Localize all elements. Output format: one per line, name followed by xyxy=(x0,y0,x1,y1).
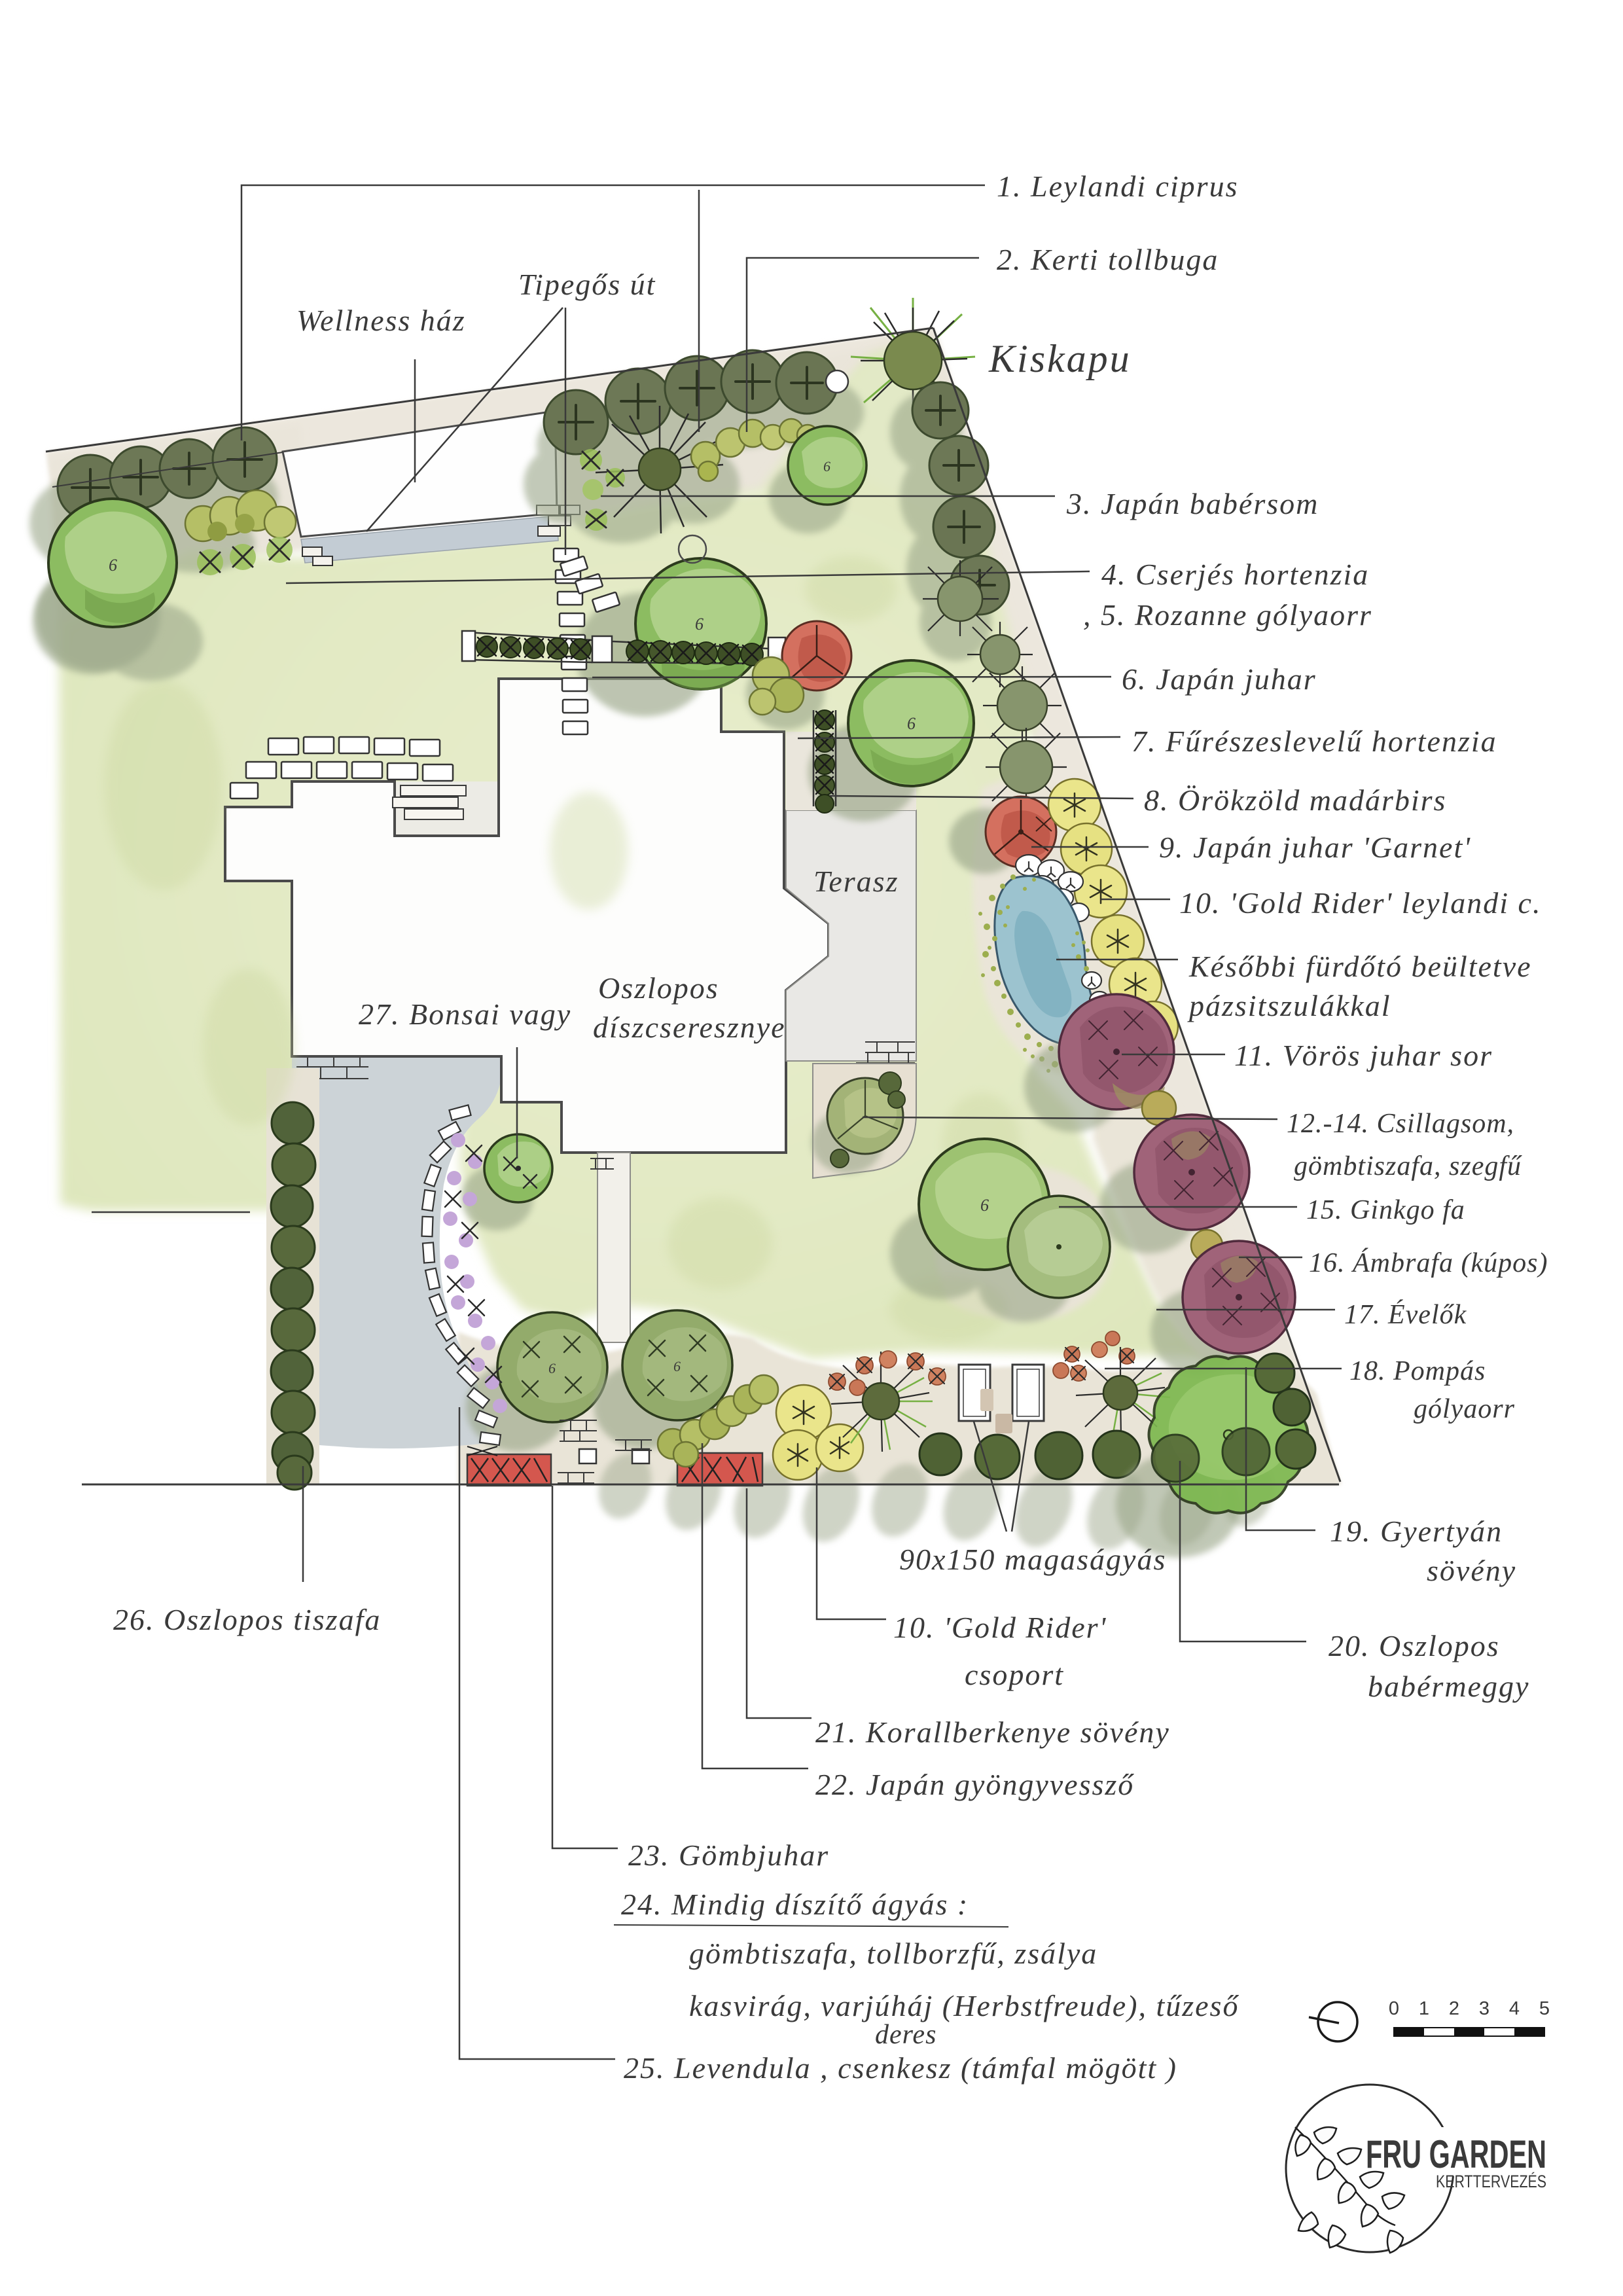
svg-text:6: 6 xyxy=(695,615,704,634)
svg-text:27. Bonsai vagy: 27. Bonsai vagy xyxy=(359,997,571,1031)
svg-text:kasvirág, varjúháj (Herbstfreu: kasvirág, varjúháj (Herbstfreude), tűzes… xyxy=(689,1989,1239,2022)
svg-text:, 5. Rozanne gólyaorr: , 5. Rozanne gólyaorr xyxy=(1083,598,1372,632)
svg-text:Kiskapu: Kiskapu xyxy=(988,337,1132,380)
svg-text:15. Ginkgo fa: 15. Ginkgo fa xyxy=(1306,1195,1465,1225)
svg-text:25. Levendula , csenkesz (támf: 25. Levendula , csenkesz (támfal mögött … xyxy=(624,2051,1177,2085)
svg-text:11. Vörös juhar sor: 11. Vörös juhar sor xyxy=(1234,1039,1493,1072)
svg-text:sövény: sövény xyxy=(1427,1554,1516,1587)
svg-text:babérmeggy: babérmeggy xyxy=(1368,1670,1529,1703)
svg-text:FRU GARDEN: FRU GARDEN xyxy=(1366,2132,1546,2176)
svg-text:3: 3 xyxy=(1479,1998,1489,2019)
svg-text:gömbtiszafa, tollborzfű, zsály: gömbtiszafa, tollborzfű, zsálya xyxy=(689,1937,1097,1970)
svg-text:Terasz: Terasz xyxy=(813,865,899,898)
svg-text:Tipegős út: Tipegős út xyxy=(518,268,656,301)
svg-text:19. Gyertyán: 19. Gyertyán xyxy=(1330,1515,1503,1548)
svg-text:deres: deres xyxy=(875,2020,936,2050)
svg-text:KERTTERVEZÉS: KERTTERVEZÉS xyxy=(1436,2172,1546,2191)
svg-text:23. Gömbjuhar: 23. Gömbjuhar xyxy=(628,1839,829,1872)
svg-text:7. Fűrészeslevelű hortenzia: 7. Fűrészeslevelű hortenzia xyxy=(1132,725,1497,758)
svg-text:6: 6 xyxy=(823,458,830,475)
svg-text:8. Örökzöld madárbirs: 8. Örökzöld madárbirs xyxy=(1144,783,1446,817)
svg-text:gólyaorr: gólyaorr xyxy=(1414,1394,1515,1424)
svg-text:22. Japán gyöngyvessző: 22. Japán gyöngyvessző xyxy=(815,1768,1134,1801)
svg-text:2: 2 xyxy=(1449,1998,1459,2019)
svg-text:Későbbi fürdőtó beültetve: Későbbi fürdőtó beültetve xyxy=(1188,950,1532,983)
svg-text:6: 6 xyxy=(673,1358,681,1374)
svg-text:6: 6 xyxy=(907,714,916,733)
svg-text:0: 0 xyxy=(1389,1998,1399,2019)
svg-text:Wellness ház: Wellness ház xyxy=(296,304,466,337)
svg-text:5: 5 xyxy=(1539,1998,1550,2019)
svg-text:4. Cserjés hortenzia: 4. Cserjés hortenzia xyxy=(1101,558,1369,591)
svg-text:18. Pompás: 18. Pompás xyxy=(1349,1356,1486,1386)
svg-text:6: 6 xyxy=(980,1196,989,1215)
svg-text:21. Korallberkenye sövény: 21. Korallberkenye sövény xyxy=(815,1715,1170,1749)
svg-text:1. Leylandi ciprus: 1. Leylandi ciprus xyxy=(997,170,1238,203)
svg-text:17. Évelők: 17. Évelők xyxy=(1344,1299,1467,1330)
svg-text:24. Mindig díszítő ágyás :: 24. Mindig díszítő ágyás : xyxy=(621,1888,969,1921)
svg-text:6: 6 xyxy=(109,556,117,575)
svg-text:3. Japán babérsom: 3. Japán babérsom xyxy=(1066,487,1319,520)
svg-text:9. Japán juhar 'Garnet': 9. Japán juhar 'Garnet' xyxy=(1159,831,1471,864)
svg-text:gömbtiszafa, szegfű: gömbtiszafa, szegfű xyxy=(1294,1151,1522,1181)
svg-text:6. Japán juhar: 6. Japán juhar xyxy=(1122,662,1317,696)
svg-text:26. Oszlopos tiszafa: 26. Oszlopos tiszafa xyxy=(113,1603,381,1636)
svg-text:4: 4 xyxy=(1509,1998,1520,2019)
svg-text:Oszlopos: Oszlopos xyxy=(598,971,719,1005)
svg-text:2. Kerti tollbuga: 2. Kerti tollbuga xyxy=(997,243,1219,276)
svg-text:16. Ámbrafa (kúpos): 16. Ámbrafa (kúpos) xyxy=(1309,1247,1548,1278)
svg-text:6: 6 xyxy=(548,1360,556,1376)
svg-text:10. 'Gold Rider' leylandi c.: 10. 'Gold Rider' leylandi c. xyxy=(1179,886,1541,920)
svg-text:10. 'Gold Rider': 10. 'Gold Rider' xyxy=(893,1611,1107,1644)
svg-text:pázsitszulákkal: pázsitszulákkal xyxy=(1187,989,1391,1022)
svg-text:csoport: csoport xyxy=(965,1658,1064,1691)
svg-text:90x150 magaságyás: 90x150 magaságyás xyxy=(899,1543,1166,1576)
svg-text:1: 1 xyxy=(1419,1998,1429,2019)
svg-text:díszcseresznye: díszcseresznye xyxy=(593,1011,786,1044)
svg-text:20. Oszlopos: 20. Oszlopos xyxy=(1329,1629,1500,1662)
svg-text:12.-14. Csillagsom,: 12.-14. Csillagsom, xyxy=(1287,1109,1514,1139)
